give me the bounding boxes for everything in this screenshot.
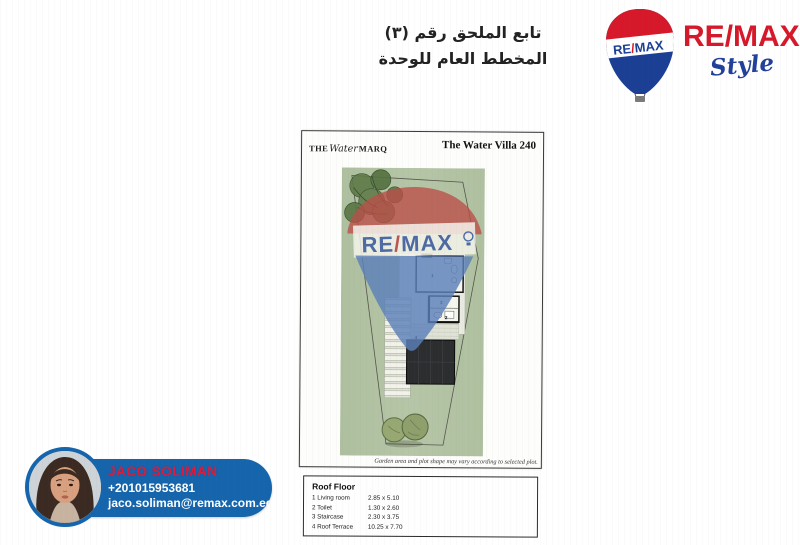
table-header: Roof Floor [312, 481, 529, 492]
table-row: 4 Roof Terrace 10.25 x 7.70 [312, 523, 529, 531]
villa-title: The Water Villa 240 [442, 139, 536, 158]
the-marq-logo: THEWaterMARQ [309, 138, 387, 157]
agent-name: JACO SOLIMAN [108, 464, 272, 480]
agent-email: jaco.soliman@remax.com.eg [108, 496, 272, 512]
table-row: 3 Staircase 2.30 x 3.75 [312, 514, 529, 522]
remax-brand-lockup: RE/MAX RE/MAX® Style [601, 6, 800, 102]
plan-caption: Garden area and plot shape may vary acco… [374, 458, 538, 466]
balloon-basket [635, 96, 645, 102]
table-row: 2 Toilet 1.30 x 2.60 [312, 504, 529, 512]
agent-phone: +201015953681 [108, 481, 272, 497]
sheet-header: THEWaterMARQ The Water Villa 240 [302, 131, 543, 158]
site-plan-drawing: 1 2 3 4 RE/MAX [340, 167, 485, 456]
table-row: 1 Living room 2.85 x 5.10 [312, 494, 529, 502]
arabic-title-line2: المخطط العام للوحدة [330, 46, 596, 72]
arabic-title-line1: تابع الملحق رقم (٣) [330, 20, 596, 46]
label-toilet: 2 [445, 315, 448, 320]
arabic-title-block: تابع الملحق رقم (٣) المخطط العام للوحدة [330, 20, 596, 73]
agent-photo [25, 447, 105, 527]
remax-balloon-icon: RE/MAX [601, 6, 679, 102]
agent-avatar-illustration [29, 451, 101, 523]
floorplan-sheet: THEWaterMARQ The Water Villa 240 [299, 130, 544, 469]
roof-floor-table: Roof Floor 1 Living room 2.85 x 5.10 2 T… [303, 475, 538, 537]
remax-wordmark-block: RE/MAX® Style [683, 6, 800, 79]
watermark-text: RE/MAX [361, 230, 453, 258]
site-plan: 1 2 3 4 RE/MAX [340, 167, 485, 456]
